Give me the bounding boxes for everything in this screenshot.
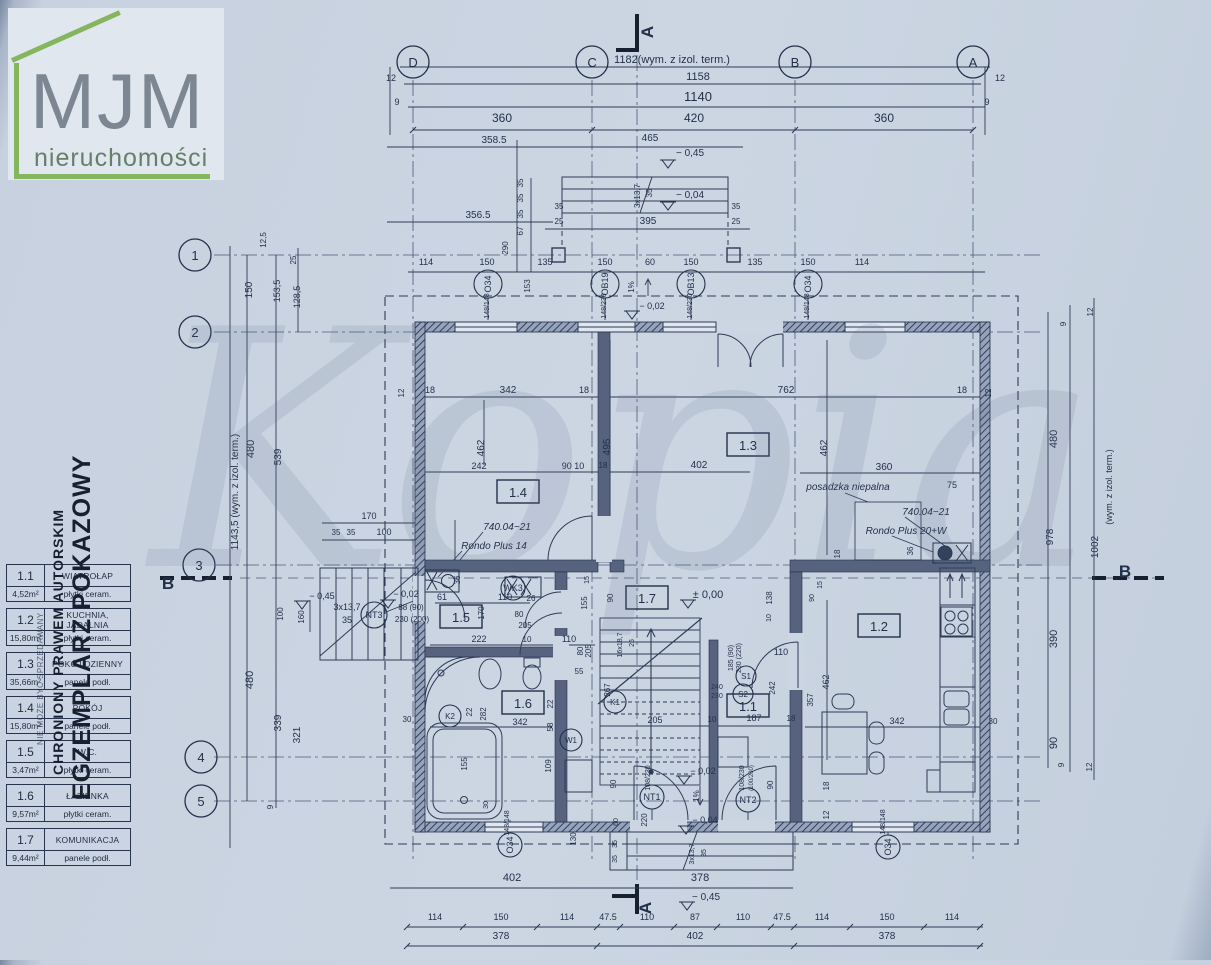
dim-label: 16x18,7 (617, 632, 624, 657)
dim-label: 170 (361, 511, 376, 521)
dim-label: 18 (833, 549, 842, 558)
blueprint-sheet: DCBA12345 O34OB19OB13O34NT3WK3K2K1W1S1S2… (0, 0, 1211, 960)
dim-label: 205 (584, 644, 593, 658)
dim-label: 150 (479, 257, 494, 267)
dim-label: 402 (687, 931, 704, 942)
legend-room-area: 3,47m² (7, 763, 45, 777)
dim-label: 342 (889, 716, 904, 726)
dim-label: 128,5 (292, 286, 302, 309)
dim-label: 80 (515, 610, 524, 619)
dim-label: 539 (273, 448, 284, 465)
dim-label: 15 (584, 576, 591, 584)
dim-label: 1143,5 (wym. z izol. term.) (230, 434, 241, 551)
grid-label: B (791, 55, 800, 70)
section-marks (160, 14, 1164, 914)
dim-label: − 0,02 (639, 301, 664, 311)
dim-label: 462 (819, 439, 830, 456)
dim-label: 12 (386, 73, 396, 83)
dim-label: 47.5 (599, 912, 617, 922)
grid-label: C (587, 55, 596, 70)
dim-label: 110 (774, 647, 788, 657)
dim-label: 110 (498, 592, 512, 602)
grid-bubbles: DCBA12345 (179, 46, 989, 817)
dim-label: 150 (244, 281, 255, 298)
dim-label: 87 (690, 912, 700, 922)
dim-label: 110 (736, 912, 750, 922)
dim-label: 205 (518, 621, 532, 630)
dim-label: 60 (645, 257, 655, 267)
dim-label: 9 (266, 804, 275, 809)
dim-label: 100 (276, 607, 285, 621)
dim-label: 3x13,7 (633, 183, 642, 208)
dim-label: − 0,45 (692, 892, 721, 903)
dim-label: 12 (1085, 762, 1094, 771)
dim-label: 230 (711, 693, 723, 700)
dim-label: 18 (599, 461, 608, 470)
logo-title: MJM (30, 56, 205, 147)
dim-label: 12 (995, 73, 1005, 83)
dim-label: 90 (809, 594, 816, 602)
dim-label: 47.5 (773, 912, 791, 922)
legend-room-area: 9,44m² (7, 851, 45, 865)
dim-label: 480 (244, 671, 256, 689)
dim-label: 148/148 (484, 293, 491, 318)
dim-label: 30 (403, 715, 412, 724)
dim-label: 135 (537, 257, 552, 267)
dim-label: 35 (342, 615, 352, 625)
dim-label: 36 (906, 546, 915, 555)
dim-label: 150 (683, 257, 698, 267)
dim-label: 480 (1048, 430, 1060, 448)
joinery-marker-label: O34 (483, 275, 493, 292)
dim-label: 114 (815, 912, 829, 922)
dim-label: ± 0,00 (693, 589, 724, 601)
dim-label: 342 (500, 385, 517, 396)
dim-label: 185 (90) (728, 645, 735, 671)
dim-label: 378 (879, 931, 896, 942)
dim-label: 35 (612, 855, 619, 863)
dim-label: (100/200) (749, 765, 755, 791)
dim-label: 155 (460, 757, 469, 771)
dim-label: 35 (332, 528, 341, 537)
dim-label: 150 (597, 257, 612, 267)
joinery-marker-label: NT3 (365, 610, 382, 620)
dim-label: 360 (874, 111, 894, 125)
dim-label: 114 (419, 257, 433, 267)
dim-label: 35 (732, 202, 741, 211)
dim-label: 462 (821, 674, 831, 689)
room-number-label: 1.7 (638, 591, 656, 606)
grid-label: 4 (197, 750, 204, 765)
floorplan-sheet: { "logo": {"title": "MJM", "subtitle": "… (0, 0, 1211, 960)
dim-label: 130 (569, 832, 578, 846)
door-swings (425, 334, 798, 820)
joinery-marker-label: O34 (803, 275, 813, 292)
dim-label: 114 (560, 912, 574, 922)
dim-label: 15 (817, 581, 824, 589)
dim-label: 230 (220) (736, 643, 743, 673)
dim-label: 35 (516, 178, 525, 187)
dim-label: 978 (1045, 528, 1056, 545)
dim-label: 114 (855, 257, 869, 267)
dim-label: 18 (425, 385, 435, 395)
dim-label: 378 (493, 931, 510, 942)
dim-label: 1140 (684, 89, 712, 104)
dim-label: 148/230 (687, 293, 694, 318)
dim-label: − 0,02 (690, 766, 715, 776)
joinery-marker-label: O34 (883, 838, 893, 855)
dim-label: 153,5 (272, 280, 282, 303)
grid-label: A (969, 55, 978, 70)
dim-label: 114 (428, 912, 442, 922)
dim-label: 36 (453, 575, 462, 584)
dim-label: 480 (245, 440, 257, 458)
dim-label: 462 (476, 439, 487, 456)
dim-label: 1002 (1090, 535, 1101, 558)
logo-bottom-line (14, 174, 210, 179)
room-number-label: 1.6 (514, 696, 532, 711)
kitchen-fixtures (718, 568, 975, 792)
dim-label: 402 (503, 872, 521, 884)
dim-label: 90 (766, 780, 775, 789)
dim-label: 230 (200) (395, 615, 430, 624)
logo-roof-line (11, 10, 121, 63)
dim-label: 100 (376, 527, 391, 537)
dim-label: 9 (984, 97, 989, 107)
room-number-label: 1.5 (452, 610, 470, 625)
legend-room-floor: panele podł. (45, 851, 130, 865)
dim-label: 360 (492, 111, 512, 125)
dim-label: 35 (645, 188, 654, 197)
dim-label: − 0,04 (676, 190, 705, 201)
dim-label: 114 (945, 912, 959, 922)
dim-label: 420 (684, 111, 704, 125)
grid-label: 5 (197, 794, 204, 809)
dim-label: 1158 (686, 71, 710, 83)
dim-label: 18 (787, 714, 796, 723)
dim-label: 12 (397, 388, 406, 397)
grid-label: 2 (191, 325, 198, 340)
dim-label: 10 (766, 614, 773, 622)
dim-label: 67 (516, 226, 525, 235)
dim-label: 35 (516, 209, 525, 218)
dim-label: 25 (289, 255, 298, 264)
grid-label: 3 (195, 558, 202, 573)
dim-label: 12 (984, 388, 993, 397)
dim-label: 88 (90) (398, 603, 424, 612)
dim-label: 3x13,7 (333, 602, 360, 612)
dim-label: 267 (603, 683, 612, 697)
dim-label: A (638, 26, 657, 38)
joinery-marker-label: K2 (445, 712, 455, 721)
dim-label: 150 (800, 257, 815, 267)
dim-label: 12 (1086, 307, 1095, 316)
dim-label: 220 (640, 813, 649, 827)
dim-label: 155 (580, 596, 589, 610)
joinery-marker-label: NT1 (643, 792, 660, 802)
dim-label: 148/148 (504, 810, 511, 835)
dim-label: 30 (989, 717, 998, 726)
logo-subtitle: nieruchomości (34, 144, 208, 173)
dim-label: 465 (642, 133, 659, 144)
dim-label: 10 (708, 715, 717, 724)
dim-label: 90 (609, 779, 618, 788)
dim-label: 30 (483, 801, 490, 809)
dim-label: 110 (562, 634, 576, 644)
joinery-marker-label: W1 (565, 736, 578, 745)
dim-label: Rondo Plus 20+W (866, 526, 948, 537)
joinery-marker-label: K1 (610, 698, 620, 707)
logo-left-line (14, 63, 19, 178)
dim-label: 240 (711, 684, 723, 691)
dim-label: 187 (746, 713, 761, 723)
dim-label: 160 (297, 610, 306, 624)
legend-room-id: 1.6 (7, 785, 45, 806)
dim-label: 108/230 (739, 765, 746, 790)
dim-label: 242 (471, 461, 486, 471)
dim-label: 12 (822, 810, 831, 819)
dimension-lines (230, 67, 1094, 949)
dim-label: 110 (640, 912, 654, 922)
mjm-logo: MJM nieruchomości (8, 8, 224, 180)
dim-label: 55 (575, 667, 584, 676)
dim-label: 90 (1048, 737, 1060, 749)
dim-label: 390 (1048, 630, 1060, 648)
dim-label: 61 (437, 592, 447, 602)
dim-label: 150 (879, 912, 894, 922)
dim-label: 35 (516, 193, 525, 202)
joinery-marker-label: NT2 (739, 795, 756, 805)
dim-label: 108/230 (645, 765, 652, 790)
legend-room-id: 1.7 (7, 829, 45, 850)
dim-label: − 0,45 (309, 591, 334, 601)
stamp-line1: EGZEMPLARZ POKAZOWY (68, 455, 97, 800)
dim-label: 22 (465, 707, 474, 716)
dim-label: 360 (876, 462, 893, 473)
dim-label: 1% (692, 790, 701, 802)
dim-label: 3x13,7 (689, 843, 696, 864)
dim-label: 135 (747, 257, 762, 267)
legend-room-id: 1.1 (7, 565, 45, 586)
dim-label: − 0,04 (692, 815, 717, 825)
room-number-label: 1.2 (870, 619, 888, 634)
dim-label: 9 (1059, 321, 1068, 326)
dim-label: 395 (640, 216, 657, 227)
dim-label: 495 (602, 438, 613, 455)
joinery-marker-label: OB13 (686, 272, 696, 295)
dim-label: 321 (292, 726, 303, 743)
stamp-note: NIE MOŻE BYĆ SPRZEDAWANY (36, 612, 45, 745)
dim-label: 290 (501, 241, 510, 255)
dim-label: 25 (732, 217, 741, 226)
dim-label: 109 (544, 759, 553, 773)
dim-label: 10 (523, 635, 532, 644)
dim-label: 358.5 (481, 135, 506, 146)
dim-label: Rondo Plus 14 (461, 541, 527, 552)
dim-label: 222 (471, 634, 486, 644)
dim-label: 1% (627, 281, 636, 293)
dim-label: 90 10 (562, 461, 585, 471)
dim-label: B (1119, 562, 1131, 581)
dim-label: 148/230 (601, 293, 608, 318)
dim-label: 18 (957, 385, 967, 395)
grid-label: D (408, 55, 417, 70)
dim-label: 342 (512, 717, 527, 727)
dim-label: 22 (546, 699, 555, 708)
dim-label: posadzka niepalna (805, 482, 890, 493)
dim-label: 75 (947, 480, 957, 490)
dim-label: 58 (546, 722, 555, 731)
dim-label: 762 (778, 385, 795, 396)
joinery-marker-label: OB19 (600, 272, 610, 295)
dim-label: 35 (701, 849, 708, 857)
dim-label: 90 (606, 593, 615, 602)
dim-label: 35 (347, 528, 356, 537)
dim-label: 740.04−21 (483, 522, 531, 533)
legend-room-floor: płytki ceram. (45, 807, 130, 821)
room-numbers: 1.41.31.71.51.61.11.2 (440, 433, 900, 717)
dim-label: 18 (822, 781, 831, 790)
dim-label: 18 (579, 385, 589, 395)
dim-label: 12,5 (259, 232, 268, 248)
dim-label: B (162, 574, 174, 593)
room-number-label: 1.3 (739, 438, 757, 453)
legend-room-area: 9,57m² (7, 807, 45, 821)
dim-label: 60 (613, 818, 620, 826)
joinery-marker-label: O34 (505, 836, 515, 853)
grid-label: 1 (191, 248, 198, 263)
dim-label: 35 (612, 840, 619, 848)
dim-label: 205 (647, 715, 662, 725)
dim-label: 148/148 (804, 293, 811, 318)
dim-label: − 0,02 (393, 589, 418, 599)
legend-row: 1.7KOMUNIKACJA9,44m²panele podł. (6, 828, 131, 866)
dim-label: 25 (555, 217, 564, 226)
legend-room-area: 4,52m² (7, 587, 45, 601)
dim-label: 25 (629, 639, 636, 647)
dim-label: 9 (394, 97, 399, 107)
dim-label: 26 (527, 594, 536, 603)
dim-label: 356.5 (465, 210, 490, 221)
legend-room-name: KOMUNIKACJA (45, 829, 130, 850)
dim-label: 9 (1057, 762, 1066, 767)
dim-label: 740.04−21 (902, 507, 950, 518)
dim-label: (wym. z izol. term.) (1104, 449, 1114, 525)
dim-label: 153 (523, 279, 532, 293)
dim-label: − 0,45 (676, 148, 705, 159)
room-number-label: 1.1 (739, 699, 757, 714)
dim-label: 170 (477, 606, 486, 620)
dim-label: 138 (765, 591, 774, 605)
stamp-line2: CHRONIONY PRAWEM AUTORSKIM (50, 509, 66, 775)
dim-label: 339 (273, 714, 284, 731)
exterior-walls (415, 322, 990, 832)
dim-label: 35 (555, 202, 564, 211)
dim-label: 402 (691, 460, 708, 471)
dim-label: 282 (479, 707, 488, 721)
room-number-label: 1.4 (509, 485, 527, 500)
dim-label: 150 (493, 912, 508, 922)
dim-label: 242 (768, 681, 777, 695)
dim-label: 1182(wym. z izol. term.) (614, 54, 730, 66)
dim-label: 148/148 (880, 809, 887, 834)
dim-label: 357 (806, 693, 815, 707)
dim-label: 378 (691, 872, 709, 884)
